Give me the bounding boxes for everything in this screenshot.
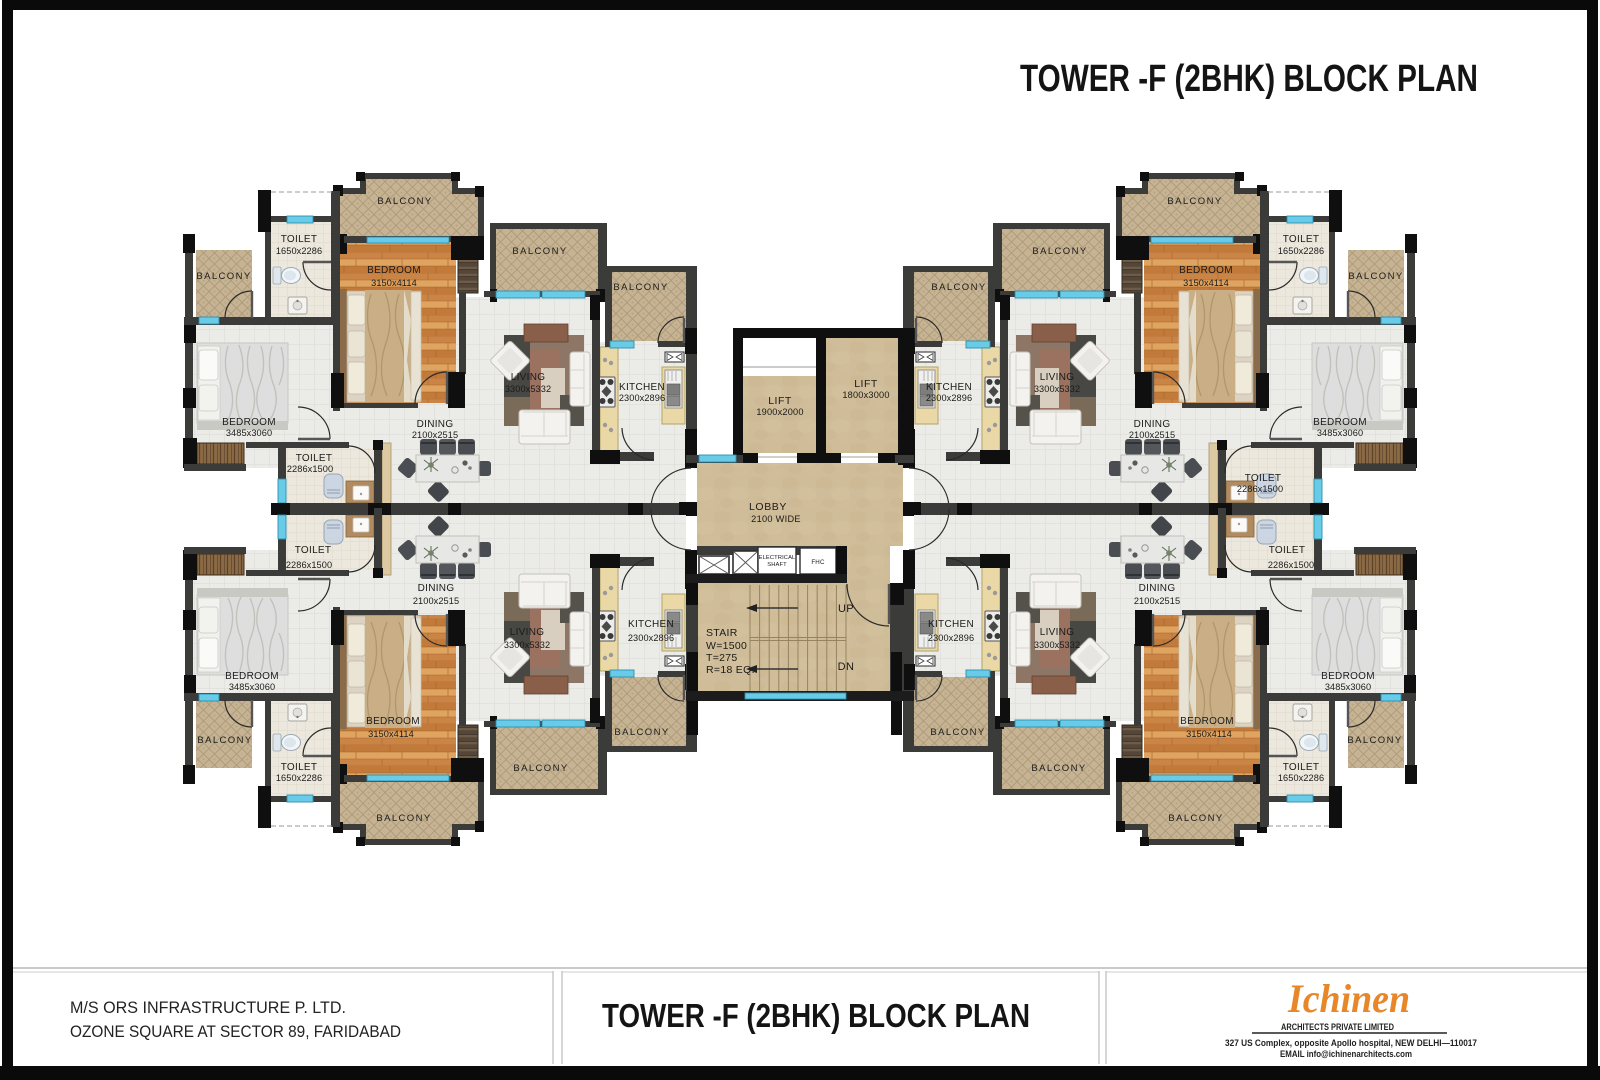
svg-text:1900x2000: 1900x2000 bbox=[756, 407, 803, 417]
svg-text:LIFT: LIFT bbox=[854, 378, 878, 390]
svg-text:2286x1500: 2286x1500 bbox=[287, 464, 333, 474]
svg-text:DN: DN bbox=[838, 661, 855, 673]
svg-text:TOILET: TOILET bbox=[295, 545, 332, 556]
svg-text:BEDROOM: BEDROOM bbox=[1179, 265, 1233, 276]
svg-text:2300x2896: 2300x2896 bbox=[928, 633, 974, 643]
svg-text:327 US Complex, opposite Apoll: 327 US Complex, opposite Apollo hospital… bbox=[1225, 1038, 1477, 1048]
svg-text:BEDROOM: BEDROOM bbox=[1180, 716, 1234, 727]
svg-text:R=18 EQ.: R=18 EQ. bbox=[706, 664, 755, 676]
svg-text:TOWER -F (2BHK) BLOCK PLAN: TOWER -F (2BHK) BLOCK PLAN bbox=[602, 997, 1030, 1034]
svg-text:3300x5332: 3300x5332 bbox=[504, 640, 550, 650]
svg-text:BALCONY: BALCONY bbox=[1031, 763, 1086, 774]
svg-text:3485x3060: 3485x3060 bbox=[1325, 682, 1371, 692]
svg-text:LIFT: LIFT bbox=[768, 395, 792, 407]
svg-text:BALCONY: BALCONY bbox=[512, 246, 567, 257]
svg-text:3300x5332: 3300x5332 bbox=[1034, 384, 1080, 394]
svg-text:BEDROOM: BEDROOM bbox=[225, 671, 279, 682]
svg-text:T=275: T=275 bbox=[706, 652, 738, 664]
svg-text:BALCONY: BALCONY bbox=[1167, 196, 1222, 207]
svg-text:KITCHEN: KITCHEN bbox=[628, 619, 674, 630]
svg-text:3485x3060: 3485x3060 bbox=[226, 428, 272, 438]
svg-text:DINING: DINING bbox=[1139, 583, 1176, 594]
svg-text:3150x4114: 3150x4114 bbox=[1186, 729, 1232, 739]
svg-text:KITCHEN: KITCHEN bbox=[926, 382, 972, 393]
svg-text:TOILET: TOILET bbox=[281, 762, 318, 773]
svg-text:LIVING: LIVING bbox=[511, 372, 546, 383]
svg-text:3150x4114: 3150x4114 bbox=[371, 278, 417, 288]
svg-text:BALCONY: BALCONY bbox=[614, 727, 669, 738]
svg-text:TOILET: TOILET bbox=[1283, 234, 1320, 245]
svg-text:1650x2286: 1650x2286 bbox=[1278, 773, 1324, 783]
svg-text:TOWER -F (2BHK) BLOCK PLAN: TOWER -F (2BHK) BLOCK PLAN bbox=[1020, 58, 1478, 100]
svg-text:LIVING: LIVING bbox=[1040, 627, 1075, 638]
svg-text:W=1500: W=1500 bbox=[706, 640, 747, 652]
svg-text:BALCONY: BALCONY bbox=[196, 271, 251, 282]
svg-text:3300x5332: 3300x5332 bbox=[505, 384, 551, 394]
svg-text:2286x1500: 2286x1500 bbox=[286, 560, 332, 570]
svg-text:2286x1500: 2286x1500 bbox=[1268, 560, 1314, 570]
svg-text:SHAFT: SHAFT bbox=[767, 562, 787, 568]
svg-text:DINING: DINING bbox=[418, 583, 455, 594]
svg-text:DINING: DINING bbox=[417, 419, 454, 430]
svg-text:3300x5332: 3300x5332 bbox=[1034, 640, 1080, 650]
svg-text:FHC: FHC bbox=[811, 559, 825, 566]
svg-text:TOILET: TOILET bbox=[1283, 762, 1320, 773]
svg-text:BEDROOM: BEDROOM bbox=[222, 417, 276, 428]
svg-text:BALCONY: BALCONY bbox=[1032, 246, 1087, 257]
svg-text:1650x2286: 1650x2286 bbox=[276, 773, 322, 783]
svg-text:2100 WIDE: 2100 WIDE bbox=[751, 514, 801, 524]
svg-text:2100x2515: 2100x2515 bbox=[1129, 430, 1175, 440]
svg-text:KITCHEN: KITCHEN bbox=[619, 382, 665, 393]
svg-text:2300x2896: 2300x2896 bbox=[619, 393, 665, 403]
svg-text:BALCONY: BALCONY bbox=[1347, 735, 1402, 746]
svg-text:3485x3060: 3485x3060 bbox=[1317, 428, 1363, 438]
svg-text:BEDROOM: BEDROOM bbox=[366, 716, 420, 727]
svg-text:ELECTRICAL: ELECTRICAL bbox=[759, 555, 796, 561]
svg-text:3150x4114: 3150x4114 bbox=[1183, 278, 1229, 288]
svg-text:2300x2896: 2300x2896 bbox=[926, 393, 972, 403]
svg-text:ARCHITECTS PRIVATE LIMITED: ARCHITECTS PRIVATE LIMITED bbox=[1281, 1022, 1394, 1032]
svg-text:3485x3060: 3485x3060 bbox=[229, 682, 275, 692]
svg-text:STAIR: STAIR bbox=[706, 627, 738, 639]
svg-text:EMAIL info@ichinenarchitects.c: EMAIL info@ichinenarchitects.com bbox=[1280, 1049, 1412, 1059]
svg-text:1800x3000: 1800x3000 bbox=[842, 390, 889, 400]
svg-text:LIVING: LIVING bbox=[510, 627, 545, 638]
svg-text:TOILET: TOILET bbox=[281, 234, 318, 245]
svg-text:M/S ORS INFRASTRUCTURE P. LTD.: M/S ORS INFRASTRUCTURE P. LTD. bbox=[70, 998, 346, 1017]
svg-text:BALCONY: BALCONY bbox=[513, 763, 568, 774]
svg-text:Ichinen: Ichinen bbox=[1287, 976, 1410, 1021]
svg-text:LIVING: LIVING bbox=[1040, 372, 1075, 383]
svg-text:BALCONY: BALCONY bbox=[1348, 271, 1403, 282]
svg-text:BALCONY: BALCONY bbox=[931, 282, 986, 293]
svg-text:BALCONY: BALCONY bbox=[377, 196, 432, 207]
svg-text:1650x2286: 1650x2286 bbox=[1278, 246, 1324, 256]
svg-text:KITCHEN: KITCHEN bbox=[928, 619, 974, 630]
svg-text:DINING: DINING bbox=[1134, 419, 1171, 430]
svg-text:BEDROOM: BEDROOM bbox=[1313, 417, 1367, 428]
svg-text:TOILET: TOILET bbox=[1245, 473, 1282, 484]
svg-text:BALCONY: BALCONY bbox=[197, 735, 252, 746]
svg-text:BALCONY: BALCONY bbox=[1168, 813, 1223, 824]
svg-text:3150x4114: 3150x4114 bbox=[368, 729, 414, 739]
svg-text:BALCONY: BALCONY bbox=[376, 813, 431, 824]
svg-text:BEDROOM: BEDROOM bbox=[1321, 671, 1375, 682]
svg-text:2100x2515: 2100x2515 bbox=[1134, 596, 1180, 606]
svg-text:BEDROOM: BEDROOM bbox=[367, 265, 421, 276]
svg-text:2100x2515: 2100x2515 bbox=[412, 430, 458, 440]
svg-text:BALCONY: BALCONY bbox=[613, 282, 668, 293]
svg-text:TOILET: TOILET bbox=[296, 453, 333, 464]
svg-text:TOILET: TOILET bbox=[1269, 545, 1306, 556]
svg-text:LOBBY: LOBBY bbox=[749, 501, 787, 513]
svg-text:1650x2286: 1650x2286 bbox=[276, 246, 322, 256]
svg-text:2286x1500: 2286x1500 bbox=[1237, 484, 1283, 494]
svg-text:2100x2515: 2100x2515 bbox=[413, 596, 459, 606]
svg-text:OZONE SQUARE AT SECTOR 89, FAR: OZONE SQUARE AT SECTOR 89, FARIDABAD bbox=[70, 1022, 401, 1041]
svg-text:UP: UP bbox=[838, 603, 854, 615]
svg-text:2300x2896: 2300x2896 bbox=[628, 633, 674, 643]
svg-text:BALCONY: BALCONY bbox=[930, 727, 985, 738]
